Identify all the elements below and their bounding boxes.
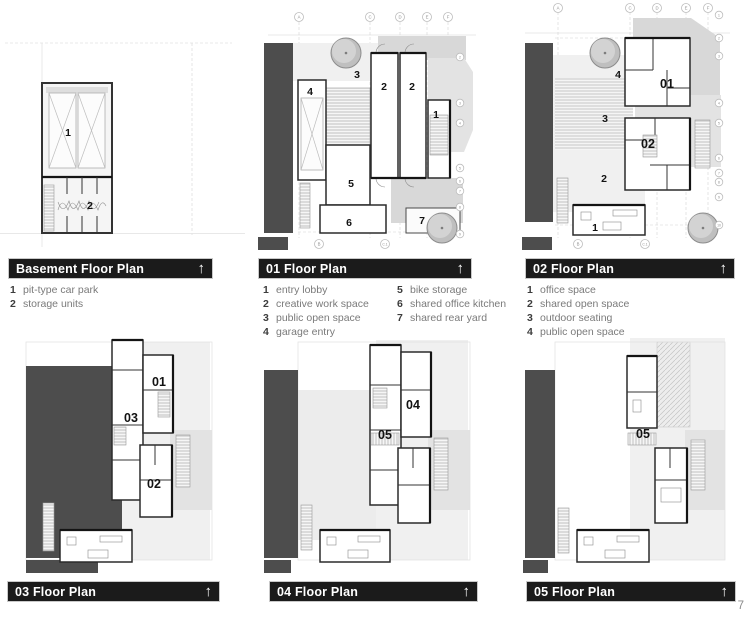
north-up-arrow-icon: ↑ <box>721 584 729 599</box>
north-up-arrow-icon: ↑ <box>198 261 206 276</box>
room-number-label: 1 <box>592 222 598 234</box>
legend-item: 3 outdoor seating <box>527 312 629 326</box>
svg-text:C: C <box>368 15 371 20</box>
legend-item: 5 bike storage <box>397 284 506 298</box>
svg-text:5: 5 <box>459 166 461 170</box>
panel-title: 05 Floor Plan <box>534 585 615 599</box>
svg-text:C.1: C.1 <box>382 243 387 247</box>
adjacent-building-mass <box>525 43 553 222</box>
legend-item-label: garage entry <box>276 326 335 338</box>
legend-item: 4 garage entry <box>263 326 375 340</box>
grid-bubbles-bottom: B C.1 <box>574 240 650 249</box>
legend-floor01: 1 entry lobby 2 creative work space 3 pu… <box>263 284 506 340</box>
unit-02-rooms <box>625 118 690 190</box>
unit-upper-rooms <box>401 352 431 437</box>
svg-text:8: 8 <box>459 205 461 209</box>
legend-item: 1 entry lobby <box>263 284 375 298</box>
north-up-arrow-icon: ↑ <box>463 584 471 599</box>
legend-item: 2 creative work space <box>263 298 375 312</box>
legend-item: 2 shared open space <box>527 298 629 312</box>
titlebar-basement: Basement Floor Plan ↑ <box>8 258 213 279</box>
floor05-plan-drawing: 05 <box>515 330 751 575</box>
tree-icon <box>688 213 718 243</box>
unit-number-label: 01 <box>660 77 674 91</box>
room-number-label: 4 <box>615 69 621 81</box>
legend-item-number: 3 <box>527 312 540 324</box>
panel-title: Basement Floor Plan <box>16 262 144 276</box>
legend-item-label: shared open space <box>540 298 629 310</box>
room-number-label: 2 <box>601 173 607 185</box>
svg-text:9: 9 <box>459 232 461 236</box>
svg-text:D: D <box>398 15 401 20</box>
unit-05-lower-rooms <box>655 448 687 523</box>
central-stair-ramp <box>326 88 370 145</box>
legend-item-label: public open space <box>276 312 361 324</box>
room-number-label: 3 <box>602 113 608 125</box>
room-number-label: 3 <box>354 69 360 81</box>
tree-icon <box>331 38 361 68</box>
side-stair <box>558 508 569 553</box>
page-number: 7 <box>728 600 744 612</box>
unit-number-label: 01 <box>152 375 166 389</box>
svg-text:5: 5 <box>718 121 720 125</box>
unit-number-label: 02 <box>641 137 655 151</box>
roof-hatch-area <box>657 342 690 427</box>
side-stair <box>301 505 312 550</box>
svg-text:9: 9 <box>718 195 720 199</box>
svg-text:C.1: C.1 <box>642 243 647 247</box>
legend-item-number: 1 <box>10 284 23 296</box>
room-number-label: 7 <box>419 215 425 227</box>
grid-bubbles-top: A C D E F <box>554 4 713 13</box>
north-up-arrow-icon: ↑ <box>720 261 728 276</box>
north-up-arrow-icon: ↑ <box>457 261 465 276</box>
common-stair <box>176 435 190 487</box>
unit-04-rooms <box>370 345 401 505</box>
svg-text:7: 7 <box>459 189 461 193</box>
panel-title: 04 Floor Plan <box>277 585 358 599</box>
adjacent-building-mass <box>264 370 298 558</box>
lower-roof-stripes <box>555 78 633 150</box>
unit-01-rooms <box>625 38 690 106</box>
legend-item: 6 shared office kitchen <box>397 298 506 312</box>
legend-item: 7 shared rear yard <box>397 312 506 326</box>
legend-item-number: 4 <box>527 326 540 338</box>
svg-text:D: D <box>655 6 658 11</box>
work-space-room <box>371 53 398 178</box>
legend-item: 4 public open space <box>527 326 629 340</box>
room-number-label: 1 <box>433 109 439 121</box>
room-number-label: 2 <box>381 81 387 93</box>
office-room <box>573 205 645 235</box>
svg-text:6: 6 <box>459 179 461 183</box>
unit-number-label: 04 <box>406 398 420 412</box>
legend-item-label: public open space <box>540 326 625 338</box>
room-number-label: 4 <box>307 86 313 98</box>
svg-text:10: 10 <box>717 223 721 227</box>
svg-text:A: A <box>557 6 560 11</box>
titlebar-floor05: 05 Floor Plan ↑ <box>526 581 736 602</box>
legend-item-number: 7 <box>397 312 410 324</box>
legend-item: 1 office space <box>527 284 629 298</box>
side-stair <box>557 178 568 223</box>
unit-number-label: 02 <box>147 477 161 491</box>
room-number-label: 2 <box>87 200 93 212</box>
svg-text:2: 2 <box>718 36 720 40</box>
svg-text:A: A <box>298 15 301 20</box>
office-room <box>60 530 132 562</box>
unit-stair <box>430 115 448 155</box>
unit-number-label: 05 <box>378 428 392 442</box>
titlebar-floor01: 01 Floor Plan ↑ <box>258 258 472 279</box>
svg-text:2: 2 <box>459 55 461 59</box>
tree-icon <box>590 38 620 68</box>
panel-title: 01 Floor Plan <box>266 262 347 276</box>
svg-text:C: C <box>628 6 631 11</box>
side-stair <box>300 183 310 228</box>
floor01-plan-drawing: A C D E F B C.1 2 3 4 5 6 7 8 9 4 3 2 2 … <box>258 0 508 250</box>
unit-number-label: 03 <box>124 411 138 425</box>
svg-text:3: 3 <box>718 54 720 58</box>
svg-text:1: 1 <box>718 13 720 17</box>
unit-lower-rooms <box>398 448 430 523</box>
adjacent-building-mass <box>525 370 555 558</box>
room-number-label: 5 <box>348 178 354 190</box>
common-stair <box>434 438 448 490</box>
legend-item-number: 4 <box>263 326 276 338</box>
legend-item-label: entry lobby <box>276 284 327 296</box>
panel-title: 03 Floor Plan <box>15 585 96 599</box>
legend-item: 1 pit-type car park <box>10 284 98 298</box>
adjacent-building-mass <box>264 43 293 233</box>
svg-text:4: 4 <box>459 121 461 125</box>
room-number-label: 2 <box>409 81 415 93</box>
common-stair <box>691 440 705 490</box>
svg-text:7: 7 <box>718 171 720 175</box>
floor03-plan-drawing: 01 03 02 <box>0 330 250 575</box>
panel-title: 02 Floor Plan <box>533 262 614 276</box>
office-room <box>320 530 390 562</box>
legend-item-label: storage units <box>23 298 83 310</box>
titlebar-floor04: 04 Floor Plan ↑ <box>269 581 478 602</box>
titlebar-floor03: 03 Floor Plan ↑ <box>7 581 220 602</box>
basement-stair <box>44 185 54 231</box>
svg-text:F: F <box>447 15 450 20</box>
legend-item-label: pit-type car park <box>23 284 98 296</box>
svg-text:B: B <box>318 242 321 247</box>
legend-item-number: 1 <box>527 284 540 296</box>
titlebar-floor02: 02 Floor Plan ↑ <box>525 258 735 279</box>
legend-item: 3 public open space <box>263 312 375 326</box>
entry-lobby-room <box>326 145 370 205</box>
legend-item-label: bike storage <box>410 284 467 296</box>
svg-text:E: E <box>426 15 429 20</box>
legend-item-number: 1 <box>263 284 276 296</box>
svg-text:3: 3 <box>459 101 461 105</box>
room-number-label: 1 <box>65 127 71 139</box>
office-room <box>577 530 649 562</box>
legend-item-label: outdoor seating <box>540 312 612 324</box>
legend-item-label: creative work space <box>276 298 369 310</box>
grid-bubbles-bottom: B C.1 <box>315 240 390 249</box>
basement-floor-plan-drawing: 1 2 <box>0 30 250 250</box>
drawing-sheet: 1 2 <box>0 0 751 619</box>
svg-text:8: 8 <box>718 180 720 184</box>
floor02-plan-drawing: A C D E F B C.1 1 2 3 4 5 6 7 8 9 10 01 … <box>515 0 751 250</box>
room-number-label: 6 <box>346 217 352 229</box>
unit-05-upper-rooms <box>627 356 657 428</box>
legend-floor02: 1 office space 2 shared open space 3 out… <box>527 284 629 340</box>
legend-item-number: 2 <box>527 298 540 310</box>
grid-bubbles-top: A C D E F <box>295 13 453 22</box>
svg-text:E: E <box>685 6 688 11</box>
legend-item-label: shared rear yard <box>410 312 487 324</box>
legend-item-number: 6 <box>397 298 410 310</box>
legend-item-number: 3 <box>263 312 276 324</box>
legend-item-label: office space <box>540 284 596 296</box>
side-stair <box>43 503 54 551</box>
work-space-room <box>400 53 426 178</box>
svg-text:B: B <box>577 242 580 247</box>
legend-item-number: 2 <box>263 298 276 310</box>
legend-item: 2 storage units <box>10 298 98 312</box>
svg-text:4: 4 <box>718 101 720 105</box>
legend-item-number: 5 <box>397 284 410 296</box>
unit-01-rooms <box>143 355 173 433</box>
unit-number-label: 05 <box>636 427 650 441</box>
tree-icon <box>427 213 457 243</box>
legend-item-label: shared office kitchen <box>410 298 506 310</box>
legend-basement: 1 pit-type car park 2 storage units <box>10 284 98 312</box>
svg-text:6: 6 <box>718 156 720 160</box>
common-stair <box>695 120 710 168</box>
legend-item-number: 2 <box>10 298 23 310</box>
floor04-plan-drawing: 04 05 <box>258 330 508 575</box>
kitchen-room <box>320 205 386 233</box>
svg-text:F: F <box>707 6 710 11</box>
north-up-arrow-icon: ↑ <box>205 584 213 599</box>
